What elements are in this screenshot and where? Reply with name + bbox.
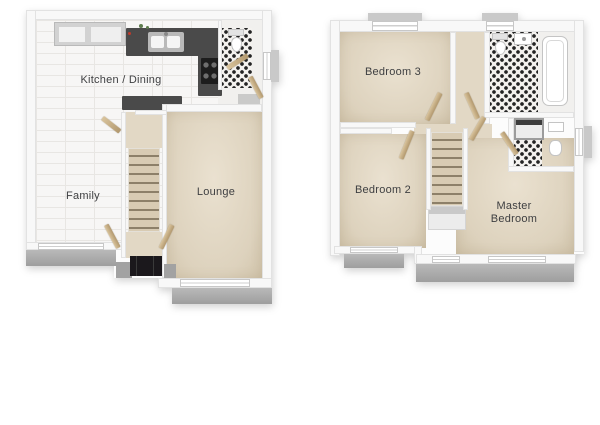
bathroom-basin <box>514 33 532 45</box>
ensuite-toilet <box>549 140 562 156</box>
bath-tub <box>542 36 568 106</box>
master-window-sill <box>416 264 574 282</box>
bath-tub-inner <box>546 40 564 102</box>
first-floor-plan: Bedroom 3 Bedroom 2 Master Bedroom <box>0 0 600 425</box>
first-wall-top <box>330 20 584 32</box>
stairwell-right-wall <box>463 128 468 210</box>
bedroom2-top-wall <box>340 128 392 134</box>
ensuite-basin <box>548 122 564 132</box>
room-label-master-bedroom: Master Bedroom <box>479 200 549 226</box>
bathroom-left-wall <box>484 32 490 124</box>
ensuite-side-window <box>575 128 583 156</box>
bedroom3-window-sill <box>368 13 422 21</box>
bedroom2-window-sill <box>344 254 404 268</box>
master-window-small <box>432 256 460 263</box>
bathroom-window <box>486 21 514 31</box>
first-staircase <box>431 132 463 206</box>
stairwell-left-wall <box>426 128 431 210</box>
bedroom3-window <box>372 21 418 31</box>
master-window-large <box>488 256 546 263</box>
bathroom-toilet-cistern <box>492 33 508 40</box>
room-label-bedroom2: Bedroom 2 <box>343 184 423 197</box>
first-wall-left <box>330 20 340 256</box>
built-in-wardrobe <box>428 206 466 230</box>
floor-plan-image: Kitchen / Dining Family Lounge <box>0 0 600 425</box>
bedroom2-window <box>350 247 398 253</box>
ensuite-bottom-wall <box>508 166 574 172</box>
room-label-bedroom3: Bedroom 3 <box>353 66 433 79</box>
bedroom3-right-wall <box>450 32 456 124</box>
basin-tap <box>522 37 526 41</box>
ensuite-shower <box>514 118 544 140</box>
bathroom-window-sill <box>482 13 518 21</box>
bathroom-bottom-wall <box>484 112 574 118</box>
ensuite-side-sill <box>584 126 592 158</box>
